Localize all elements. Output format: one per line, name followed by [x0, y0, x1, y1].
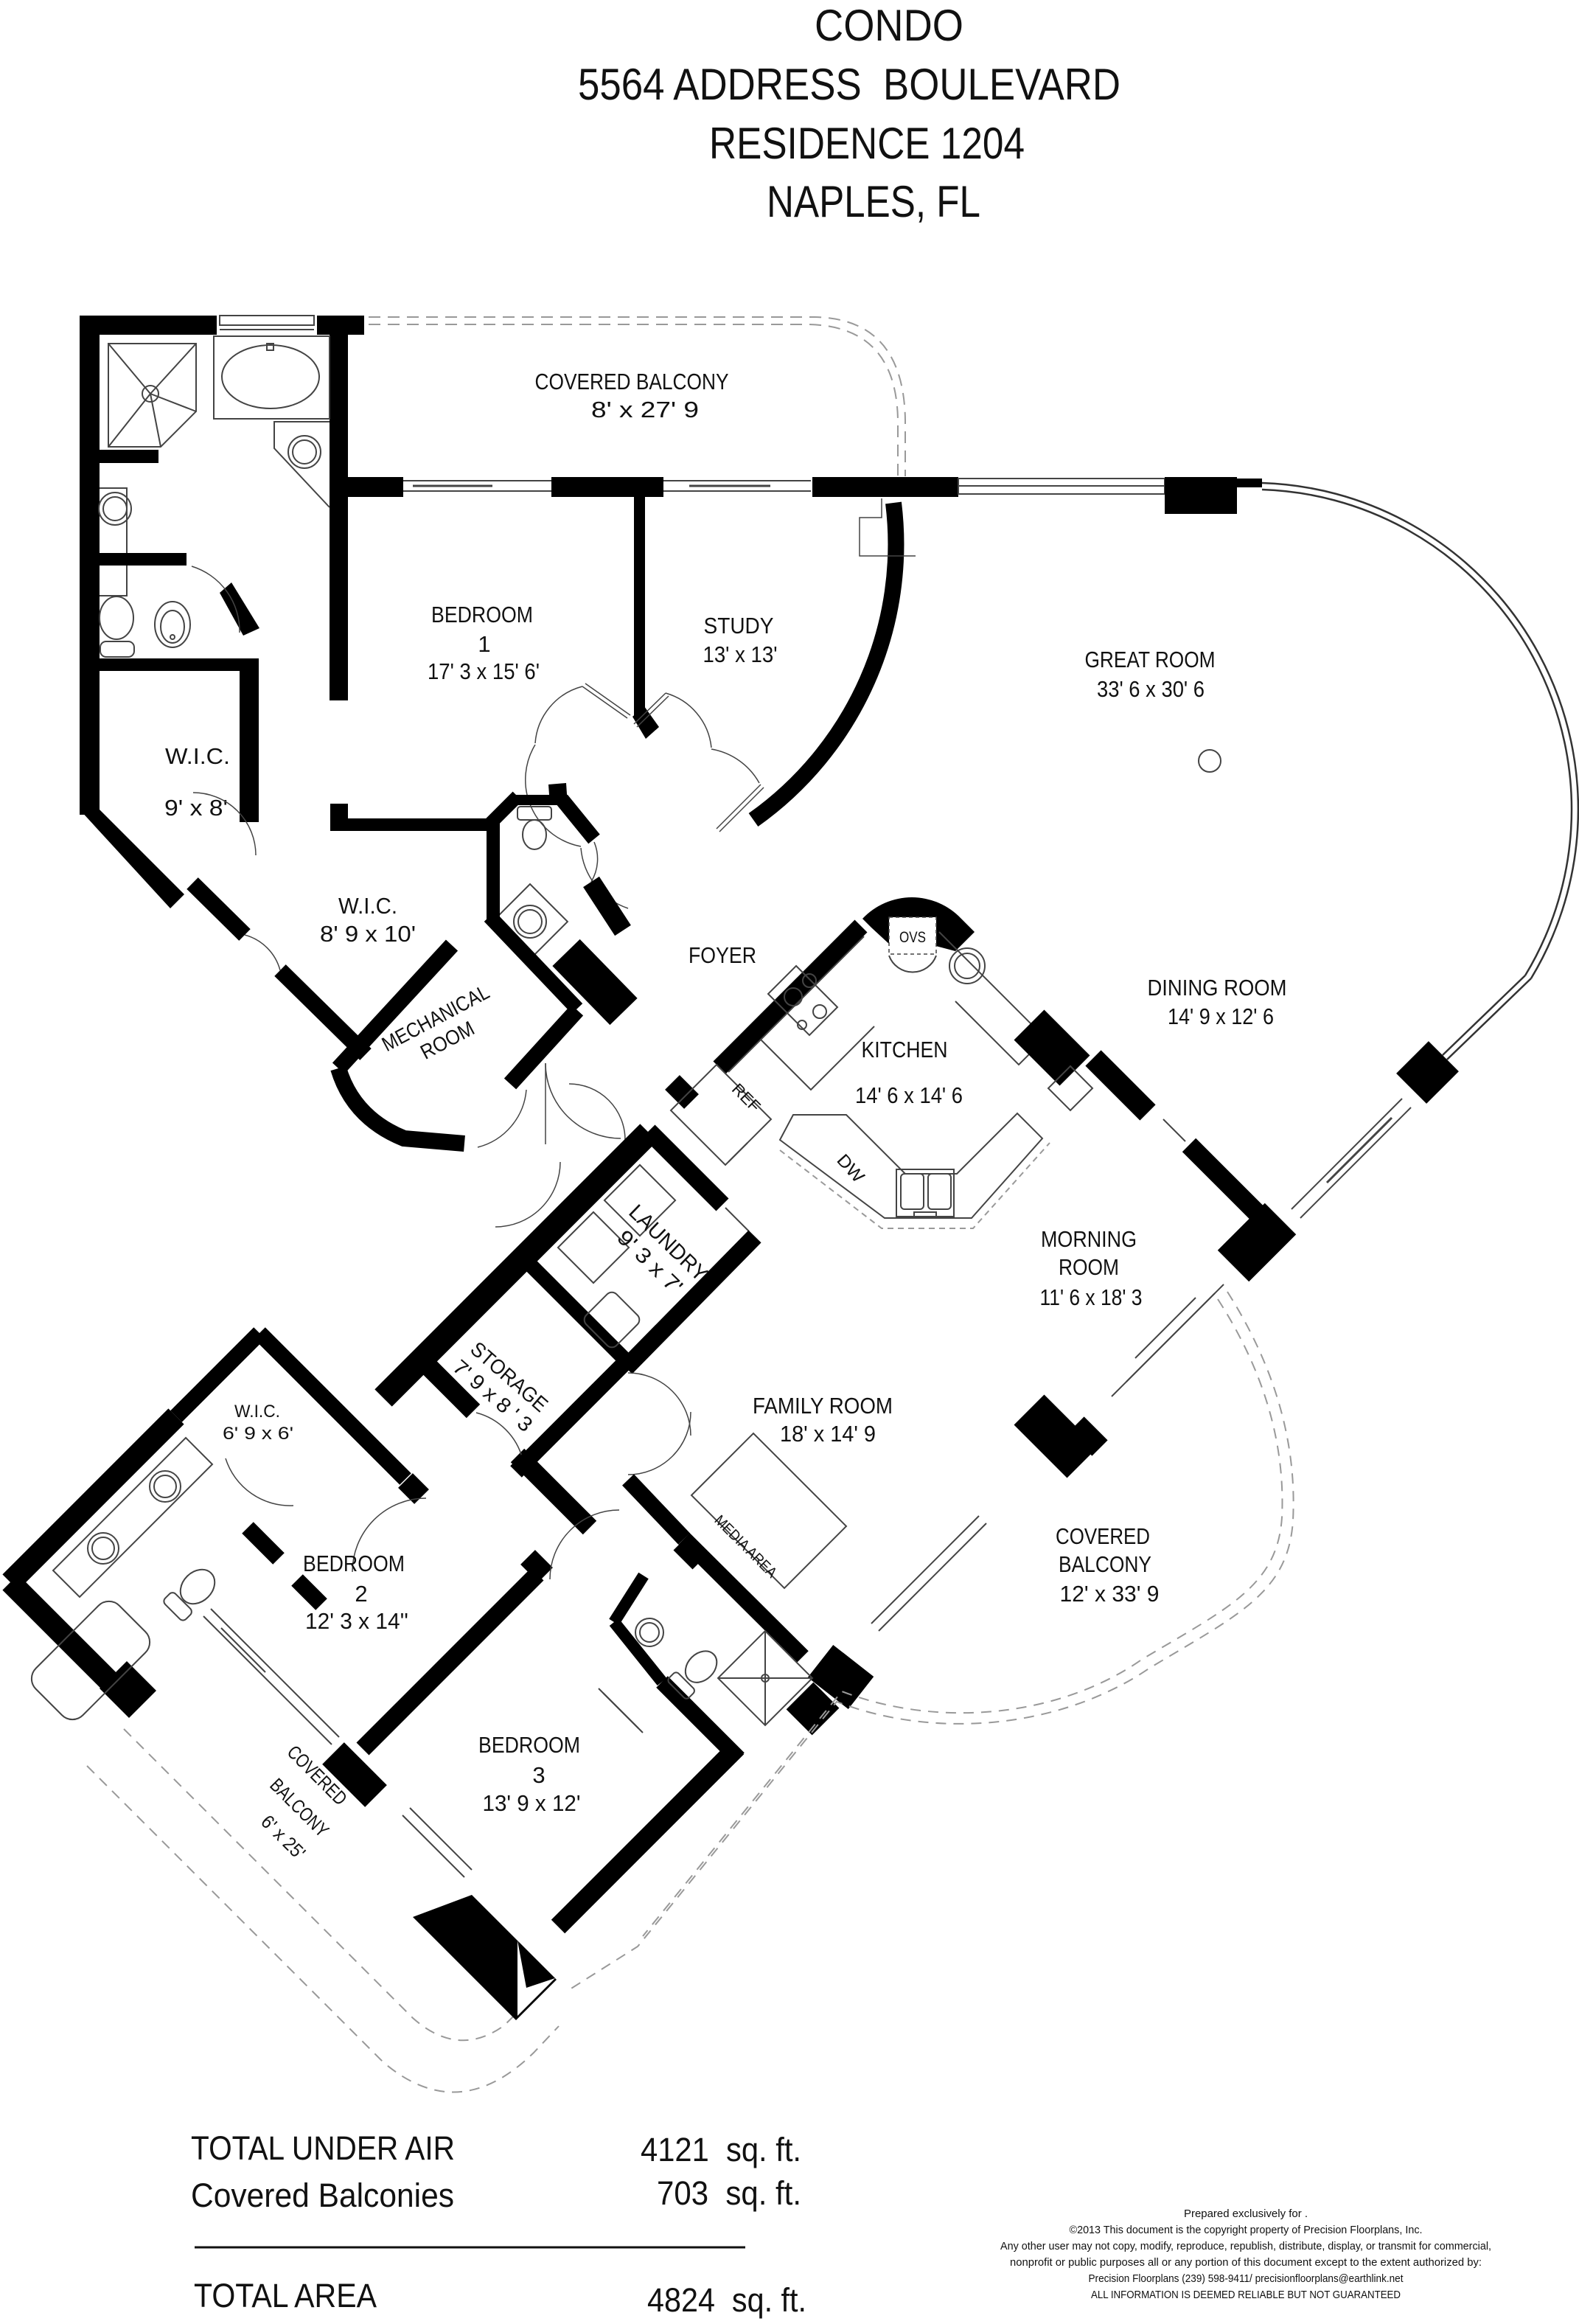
svg-text:18' x 14' 9: 18' x 14' 9 [780, 1421, 876, 1447]
svg-text:3: 3 [532, 1762, 545, 1788]
svg-text:4824 sq. ft.: 4824 sq. ft. [647, 2281, 806, 2319]
svg-text:1: 1 [478, 631, 490, 657]
svg-text:MORNING: MORNING [1041, 1226, 1137, 1252]
svg-text:12' x 33' 9: 12' x 33' 9 [1060, 1581, 1160, 1607]
svg-text:2: 2 [355, 1581, 367, 1607]
svg-text:TOTAL UNDER AIR: TOTAL UNDER AIR [191, 2129, 455, 2167]
svg-text:8' 9 x 10': 8' 9 x 10' [320, 921, 416, 947]
svg-text:FOYER: FOYER [689, 942, 756, 968]
svg-text:BEDROOM: BEDROOM [478, 1732, 580, 1758]
svg-text:Precision Floorplans (239) 598: Precision Floorplans (239) 598-9411/ pre… [1089, 2272, 1404, 2285]
svg-text:COVERED: COVERED [1056, 1523, 1150, 1549]
svg-text:5564 ADDRESS BOULEVARD: 5564 ADDRESS BOULEVARD [578, 60, 1120, 109]
svg-text:ALL INFORMATION IS DEEMED RELI: ALL INFORMATION IS DEEMED RELIABLE BUT N… [1091, 2289, 1401, 2301]
svg-text:33' 6 x 30' 6: 33' 6 x 30' 6 [1097, 676, 1205, 702]
svg-text:14' 6 x 14' 6: 14' 6 x 14' 6 [855, 1082, 963, 1108]
svg-text:©2013 This document is the cop: ©2013 This document is the copyright pro… [1070, 2224, 1423, 2236]
svg-text:4121 sq. ft.: 4121 sq. ft. [641, 2131, 801, 2168]
svg-text:REF: REF [728, 1079, 764, 1116]
svg-text:BALCONY: BALCONY [1059, 1551, 1151, 1577]
svg-text:13' x 13': 13' x 13' [703, 641, 778, 667]
svg-text:Any other user may not copy, m: Any other user may not copy, modify, rep… [1000, 2240, 1491, 2252]
svg-text:STUDY: STUDY [704, 613, 774, 639]
svg-text:OVS: OVS [899, 929, 926, 946]
svg-text:11' 6 x 18' 3: 11' 6 x 18' 3 [1040, 1284, 1143, 1310]
svg-text:NAPLES, FL: NAPLES, FL [767, 177, 980, 226]
svg-text:BEDROOM: BEDROOM [303, 1551, 405, 1576]
svg-text:14' 9 x 12' 6: 14' 9 x 12' 6 [1168, 1003, 1274, 1029]
svg-text:W.I.C.: W.I.C. [165, 743, 230, 769]
svg-text:703 sq. ft.: 703 sq. ft. [657, 2174, 801, 2212]
svg-text:KITCHEN: KITCHEN [862, 1037, 948, 1062]
svg-text:GREAT ROOM: GREAT ROOM [1085, 647, 1216, 672]
svg-text:COVERED BALCONY: COVERED BALCONY [535, 369, 729, 394]
svg-text:nonprofit or public purposes a: nonprofit or public purposes all or any … [1010, 2256, 1482, 2269]
svg-text:RESIDENCE 1204: RESIDENCE 1204 [709, 119, 1025, 168]
svg-text:12' 3 x 14'': 12' 3 x 14'' [305, 1608, 408, 1634]
svg-text:Prepared exclusively for .: Prepared exclusively for . [1184, 2208, 1308, 2220]
svg-text:8' x 27' 9: 8' x 27' 9 [591, 397, 699, 422]
svg-text:FAMILY ROOM: FAMILY ROOM [753, 1393, 893, 1419]
svg-text:W.I.C.: W.I.C. [234, 1402, 280, 1422]
svg-text:6' 9 x 6': 6' 9 x 6' [223, 1424, 293, 1444]
svg-text:CONDO: CONDO [815, 1, 963, 50]
svg-text:DINING ROOM: DINING ROOM [1148, 975, 1287, 1001]
svg-text:17' 3 x 15' 6': 17' 3 x 15' 6' [428, 658, 540, 684]
svg-text:BEDROOM: BEDROOM [431, 602, 533, 627]
svg-text:13' 9 x 12': 13' 9 x 12' [483, 1790, 581, 1816]
svg-text:Covered Balconies: Covered Balconies [191, 2177, 454, 2214]
svg-text:TOTAL AREA: TOTAL AREA [194, 2277, 377, 2314]
svg-text:9' x 8': 9' x 8' [164, 795, 228, 821]
svg-text:DW: DW [832, 1150, 868, 1187]
svg-text:W.I.C.: W.I.C. [338, 893, 397, 919]
svg-text:ROOM: ROOM [1059, 1254, 1119, 1280]
